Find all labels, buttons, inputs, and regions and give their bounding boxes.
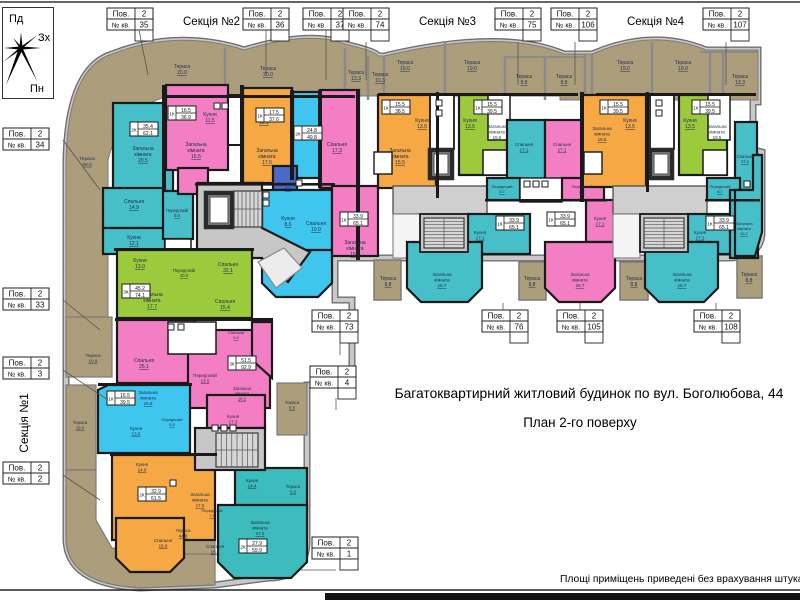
svg-text:Пов.: Пов. xyxy=(709,10,726,19)
svg-text:17.7: 17.7 xyxy=(147,304,157,310)
svg-text:39.5: 39.5 xyxy=(120,400,130,406)
svg-text:35: 35 xyxy=(140,21,149,30)
svg-text:Кухня: Кухня xyxy=(246,478,259,483)
svg-text:8.6: 8.6 xyxy=(285,222,292,228)
svg-text:15.4: 15.4 xyxy=(220,305,230,311)
svg-text:№ кв.: № кв. xyxy=(562,325,580,332)
svg-text:15.5: 15.5 xyxy=(487,102,497,108)
svg-text:2: 2 xyxy=(517,312,522,321)
svg-text:Кухня: Кухня xyxy=(130,426,143,431)
svg-text:Загальнакімната: Загальнакімната xyxy=(256,148,278,160)
svg-text:16.5: 16.5 xyxy=(191,154,201,160)
svg-text:17.5: 17.5 xyxy=(262,160,272,166)
svg-text:№ кв.: № кв. xyxy=(317,325,335,332)
svg-text:15.7: 15.7 xyxy=(350,252,360,258)
svg-text:14.4: 14.4 xyxy=(248,484,257,489)
svg-text:Загальнакімната: Загальнакімната xyxy=(707,124,727,135)
svg-text:1К: 1К xyxy=(693,106,699,111)
svg-text:105: 105 xyxy=(587,323,601,332)
svg-text:35.4: 35.4 xyxy=(143,124,153,130)
svg-text:19.0: 19.0 xyxy=(678,66,688,72)
svg-text:4: 4 xyxy=(345,379,350,388)
svg-text:Тераса: Тераса xyxy=(85,353,101,358)
svg-text:13.5: 13.5 xyxy=(685,124,695,130)
svg-text:33.9: 33.9 xyxy=(719,218,729,224)
svg-text:24.8: 24.8 xyxy=(307,128,317,134)
svg-text:Спальня: Спальня xyxy=(206,544,225,549)
svg-text:Багатоквартирний житловий буди: Багатоквартирний житловий будинок по вул… xyxy=(395,386,784,401)
svg-text:Тераса: Тераса xyxy=(175,528,191,533)
svg-text:36: 36 xyxy=(276,21,285,30)
svg-text:План 2-го поверху: План 2-го поверху xyxy=(523,415,637,430)
svg-text:39.5: 39.5 xyxy=(487,109,497,115)
svg-text:Кухня: Кухня xyxy=(136,462,149,467)
svg-text:8.8: 8.8 xyxy=(746,278,753,284)
svg-text:2: 2 xyxy=(345,368,350,377)
svg-text:16.7: 16.7 xyxy=(740,231,749,236)
svg-text:Тераса: Тераса xyxy=(79,156,95,162)
svg-text:Загальнакімната: Загальнакімната xyxy=(672,272,692,283)
svg-text:11.5: 11.5 xyxy=(205,118,215,124)
svg-text:Пд: Пд xyxy=(9,13,24,25)
svg-text:№ кв.: № кв. xyxy=(556,23,574,30)
svg-text:2К: 2К xyxy=(131,128,137,133)
svg-text:№ кв.: № кв. xyxy=(248,23,266,30)
svg-text:92.9: 92.9 xyxy=(241,365,251,371)
svg-text:2: 2 xyxy=(38,359,43,368)
svg-text:7.4: 7.4 xyxy=(209,513,215,518)
svg-text:Спальня: Спальня xyxy=(154,538,173,543)
svg-text:№ кв.: № кв. xyxy=(8,143,26,150)
svg-text:2: 2 xyxy=(38,464,43,473)
svg-text:3К: 3К xyxy=(123,290,129,295)
svg-text:Загальнакімната: Загальнакімната xyxy=(250,520,270,531)
svg-text:Загальнакімната: Загальнакімната xyxy=(344,240,366,252)
svg-text:59.9: 59.9 xyxy=(252,548,262,554)
svg-text:13.5: 13.5 xyxy=(201,379,210,384)
svg-text:8.8: 8.8 xyxy=(529,282,536,288)
svg-text:49.8: 49.8 xyxy=(307,135,317,141)
svg-text:108: 108 xyxy=(724,323,738,332)
svg-text:№ кв.: № кв. xyxy=(708,23,726,30)
svg-text:39.5: 39.5 xyxy=(705,109,715,115)
svg-text:3К: 3К xyxy=(229,362,235,367)
svg-text:38.5: 38.5 xyxy=(395,109,405,115)
svg-text:16.7: 16.7 xyxy=(438,283,447,288)
svg-text:20.0: 20.0 xyxy=(263,72,273,78)
svg-text:16.7: 16.7 xyxy=(576,283,585,288)
svg-text:65.1: 65.1 xyxy=(560,221,570,227)
svg-text:16.5: 16.5 xyxy=(120,393,130,399)
svg-text:33.9: 33.9 xyxy=(560,214,570,220)
svg-text:65.1: 65.1 xyxy=(353,221,363,227)
svg-text:19.9: 19.9 xyxy=(89,359,98,364)
svg-text:2: 2 xyxy=(347,539,352,548)
svg-text:9.2: 9.2 xyxy=(233,335,239,340)
svg-text:62.1: 62.1 xyxy=(143,131,153,137)
svg-text:20.5: 20.5 xyxy=(138,158,148,164)
svg-text:16.5: 16.5 xyxy=(181,108,191,114)
svg-text:Загальнакімната: Загальнакімната xyxy=(190,492,210,503)
svg-text:2: 2 xyxy=(38,290,43,299)
svg-text:2: 2 xyxy=(142,10,147,19)
svg-text:17.1: 17.1 xyxy=(696,236,705,241)
svg-text:Загальнакімната: Загальнакімната xyxy=(432,272,452,283)
svg-text:19.0: 19.0 xyxy=(76,425,85,430)
svg-text:19.0: 19.0 xyxy=(467,66,477,72)
svg-text:Пов.: Пов. xyxy=(563,312,580,321)
svg-text:3: 3 xyxy=(38,370,43,379)
svg-text:73: 73 xyxy=(345,323,354,332)
svg-text:№ кв.: № кв. xyxy=(8,372,26,379)
svg-text:8.7: 8.7 xyxy=(499,189,505,194)
svg-text:10.0: 10.0 xyxy=(311,227,321,233)
svg-text:№ кв.: № кв. xyxy=(8,477,26,484)
svg-text:Пов.: Пов. xyxy=(9,130,26,139)
svg-text:Пов.: Пов. xyxy=(488,312,505,321)
svg-text:33.9: 33.9 xyxy=(509,218,519,224)
svg-text:9.9: 9.9 xyxy=(521,80,528,86)
svg-text:Пов.: Пов. xyxy=(249,10,266,19)
svg-text:Загальнакімната: Загальнакімната xyxy=(233,386,252,396)
svg-text:13.0: 13.0 xyxy=(135,264,145,270)
svg-text:Загальнакімната: Загальнакімната xyxy=(487,124,507,135)
svg-text:44.9: 44.9 xyxy=(179,534,188,539)
svg-text:№ кв.: № кв. xyxy=(315,381,333,388)
svg-text:39.5: 39.5 xyxy=(613,109,623,115)
svg-text:36.9: 36.9 xyxy=(181,115,191,121)
svg-text:8.7: 8.7 xyxy=(717,189,723,194)
svg-text:1К: 1К xyxy=(475,106,481,111)
svg-text:20.0: 20.0 xyxy=(177,70,187,76)
svg-text:13.3: 13.3 xyxy=(351,76,361,82)
svg-text:№ кв.: № кв. xyxy=(317,552,335,559)
svg-text:2: 2 xyxy=(347,312,352,321)
svg-text:12.1: 12.1 xyxy=(129,241,139,247)
svg-text:2К: 2К xyxy=(240,545,246,550)
svg-text:Секція №4: Секція №4 xyxy=(627,16,685,28)
svg-text:Пов.: Пов. xyxy=(9,464,26,473)
svg-text:15.9: 15.9 xyxy=(159,544,168,549)
svg-text:1К: 1К xyxy=(707,222,713,227)
svg-text:13.5: 13.5 xyxy=(625,124,635,130)
svg-text:14.9: 14.9 xyxy=(129,205,139,211)
svg-text:2: 2 xyxy=(378,10,383,19)
svg-text:15.5: 15.5 xyxy=(493,135,502,140)
svg-text:9.9: 9.9 xyxy=(561,80,568,86)
svg-text:65.1: 65.1 xyxy=(509,225,519,231)
svg-text:9.0: 9.0 xyxy=(174,213,180,218)
svg-text:17.1: 17.1 xyxy=(476,236,485,241)
svg-text:Загальнакімната: Загальнакімната xyxy=(389,148,411,160)
svg-text:61.5: 61.5 xyxy=(151,496,161,502)
svg-text:27.9: 27.9 xyxy=(252,541,262,547)
svg-text:15.5: 15.5 xyxy=(395,102,405,108)
svg-text:51.5: 51.5 xyxy=(241,358,251,364)
svg-text:Пн: Пн xyxy=(30,83,44,95)
svg-text:74.1: 74.1 xyxy=(135,293,145,299)
svg-text:2: 2 xyxy=(530,10,535,19)
svg-text:1К: 1К xyxy=(601,106,607,111)
svg-text:2: 2 xyxy=(278,10,283,19)
svg-text:16.7: 16.7 xyxy=(678,283,687,288)
svg-text:Загальнакімната: Загальнакімната xyxy=(570,272,590,283)
svg-text:Пов.: Пов. xyxy=(318,539,335,548)
svg-text:Пов.: Пов. xyxy=(349,10,366,19)
svg-text:32.1: 32.1 xyxy=(223,268,233,274)
svg-text:107: 107 xyxy=(733,21,747,30)
svg-text:33: 33 xyxy=(36,301,45,310)
svg-text:1К: 1К xyxy=(341,218,347,223)
svg-text:15.5: 15.5 xyxy=(395,160,405,166)
svg-text:Кухня: Кухня xyxy=(594,216,607,221)
svg-text:13.5: 13.5 xyxy=(132,432,141,437)
svg-text:Загальнакімната: Загальнакімната xyxy=(132,146,154,158)
svg-text:Кухня: Кухня xyxy=(227,414,240,419)
svg-text:№ кв.: № кв. xyxy=(487,325,505,332)
svg-text:Спальня: Спальня xyxy=(515,142,534,147)
svg-text:76: 76 xyxy=(515,323,524,332)
svg-text:17.1: 17.1 xyxy=(520,148,529,153)
svg-text:Кухня: Кухня xyxy=(694,230,707,235)
svg-text:1К: 1К xyxy=(383,106,389,111)
svg-text:Передпокій: Передпокій xyxy=(193,372,217,378)
svg-text:№ кв.: № кв. xyxy=(699,325,717,332)
svg-text:1К: 1К xyxy=(169,112,175,117)
svg-text:45.2: 45.2 xyxy=(135,286,145,292)
svg-text:15.5: 15.5 xyxy=(705,102,715,108)
svg-text:Площі приміщень приведені без: Площі приміщень приведені без врахування… xyxy=(560,573,800,585)
svg-text:106: 106 xyxy=(581,21,595,30)
svg-text:33.9: 33.9 xyxy=(353,214,363,220)
svg-text:2: 2 xyxy=(729,312,734,321)
svg-text:2: 2 xyxy=(338,10,343,19)
svg-text:16.5: 16.5 xyxy=(144,401,153,406)
svg-text:74: 74 xyxy=(376,21,385,30)
svg-text:2: 2 xyxy=(592,312,597,321)
svg-text:Тераса: Тераса xyxy=(286,484,301,489)
svg-text:Пов.: Пов. xyxy=(700,312,717,321)
svg-text:75: 75 xyxy=(528,21,537,30)
svg-text:1: 1 xyxy=(347,550,352,559)
svg-text:Пов.: Пов. xyxy=(9,359,26,368)
svg-text:Загальнакімната: Загальнакімната xyxy=(185,142,207,154)
svg-text:Кухня: Кухня xyxy=(474,230,487,235)
svg-text:17.3: 17.3 xyxy=(229,420,238,425)
svg-text:Загальнакімната: Загальнакімната xyxy=(735,221,753,231)
svg-text:5.6: 5.6 xyxy=(290,489,297,494)
svg-text:17.1: 17.1 xyxy=(596,222,605,227)
svg-text:№ кв.: № кв. xyxy=(8,303,26,310)
svg-text:1К: 1К xyxy=(548,218,554,223)
svg-text:Пов.: Пов. xyxy=(309,10,326,19)
svg-text:Загальнакімната: Загальнакімната xyxy=(592,126,612,137)
svg-text:8.8: 8.8 xyxy=(385,282,392,288)
svg-text:37.6: 37.6 xyxy=(269,117,279,123)
svg-text:15.5: 15.5 xyxy=(598,137,607,142)
svg-text:Зх: Зх xyxy=(38,32,51,44)
svg-text:8.8: 8.8 xyxy=(631,282,638,288)
svg-text:2К: 2К xyxy=(295,132,301,137)
svg-text:32.9: 32.9 xyxy=(151,489,161,495)
svg-text:2: 2 xyxy=(586,10,591,19)
svg-text:69.0: 69.0 xyxy=(82,162,92,168)
svg-text:Пов.: Пов. xyxy=(9,290,26,299)
svg-text:8.7: 8.7 xyxy=(579,189,585,194)
svg-text:Секція №3: Секція №3 xyxy=(419,16,476,28)
svg-text:13.5: 13.5 xyxy=(465,124,475,130)
svg-text:1К: 1К xyxy=(497,222,503,227)
svg-text:№ кв.: № кв. xyxy=(348,23,366,30)
svg-text:34: 34 xyxy=(36,141,45,150)
svg-text:19.0: 19.0 xyxy=(620,66,630,72)
svg-text:10.0: 10.0 xyxy=(180,273,189,278)
svg-text:17.2: 17.2 xyxy=(256,531,265,536)
svg-text:Пов.: Пов. xyxy=(501,10,518,19)
svg-text:Секція №2: Секція №2 xyxy=(183,16,240,28)
svg-text:2: 2 xyxy=(38,475,43,484)
svg-text:15.7: 15.7 xyxy=(211,550,220,555)
svg-text:17.3: 17.3 xyxy=(332,148,342,154)
svg-text:Тераса: Тераса xyxy=(73,420,88,425)
svg-text:10.3: 10.3 xyxy=(375,78,385,84)
svg-text:Пов.: Пов. xyxy=(557,10,574,19)
svg-text:Пов.: Пов. xyxy=(316,368,333,377)
svg-text:№ кв.: № кв. xyxy=(500,23,518,30)
svg-text:Спальня: Спальня xyxy=(553,142,572,147)
svg-text:№ кв.: № кв. xyxy=(112,23,130,30)
svg-text:13.3: 13.3 xyxy=(735,80,745,86)
svg-text:2К: 2К xyxy=(139,493,145,498)
svg-text:13.5: 13.5 xyxy=(417,124,427,130)
svg-text:1К: 1К xyxy=(108,397,114,402)
svg-text:25.1: 25.1 xyxy=(139,364,149,370)
svg-text:2: 2 xyxy=(738,10,743,19)
svg-text:Пов.: Пов. xyxy=(318,312,335,321)
svg-text:15.5: 15.5 xyxy=(713,135,722,140)
svg-text:2: 2 xyxy=(38,130,43,139)
svg-text:14.0: 14.0 xyxy=(138,468,147,473)
svg-text:1К: 1К xyxy=(257,114,263,119)
svg-text:17.1: 17.1 xyxy=(741,159,750,164)
svg-text:16.2: 16.2 xyxy=(238,396,247,401)
svg-text:8.6: 8.6 xyxy=(285,186,291,191)
svg-text:Загальнакімната: Загальнакімната xyxy=(138,390,158,401)
svg-text:5.5: 5.5 xyxy=(169,422,175,427)
svg-text:№ кв.: № кв. xyxy=(308,23,326,30)
svg-text:17.1: 17.1 xyxy=(558,148,567,153)
svg-text:15.5: 15.5 xyxy=(613,102,623,108)
svg-text:65.1: 65.1 xyxy=(719,225,729,231)
svg-text:17.5: 17.5 xyxy=(269,110,279,116)
svg-text:Секція №1: Секція №1 xyxy=(17,393,31,453)
svg-text:5.5: 5.5 xyxy=(289,405,296,410)
svg-text:Пов.: Пов. xyxy=(113,10,130,19)
svg-text:19.0: 19.0 xyxy=(400,66,410,72)
svg-text:Тераса: Тераса xyxy=(285,400,300,405)
